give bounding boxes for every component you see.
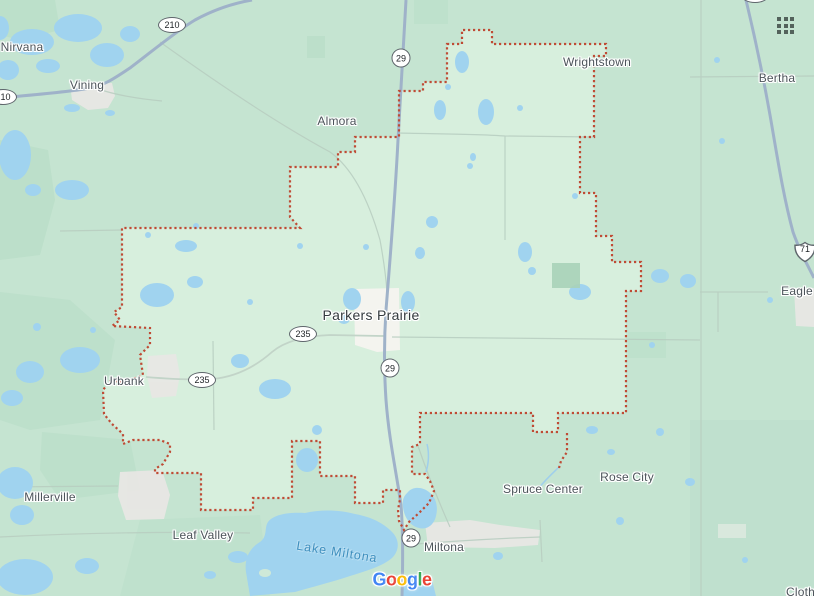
lake-island xyxy=(259,569,271,577)
place-label-nirvana[interactable]: Nirvana xyxy=(1,40,44,54)
map-graphics xyxy=(0,0,814,596)
place-label-millerville[interactable]: Millerville xyxy=(24,490,76,504)
grid-dot xyxy=(777,17,781,21)
place-label-almora[interactable]: Almora xyxy=(317,114,356,128)
place-label-spruce-center[interactable]: Spruce Center xyxy=(503,482,583,496)
place-label-eagle[interactable]: Eagle xyxy=(781,284,813,298)
route-shield-29-mid: 29 xyxy=(381,359,400,378)
place-label-rose-city[interactable]: Rose City xyxy=(600,470,654,484)
grid-dot xyxy=(784,30,788,34)
forest-patch xyxy=(552,263,580,288)
logo-letter: o xyxy=(386,570,397,590)
place-label-leaf-valley[interactable]: Leaf Valley xyxy=(173,528,234,542)
route-shield-29-top: 29 xyxy=(392,49,411,68)
place-label-miltona[interactable]: Miltona xyxy=(424,540,464,554)
place-label-clotho[interactable]: Clotho xyxy=(786,585,814,596)
grid-dot xyxy=(777,24,781,28)
place-label-urbank[interactable]: Urbank xyxy=(104,374,144,388)
grid-dot xyxy=(790,24,794,28)
map-canvas[interactable]: 210 210 29 29 29 235 235 71 Nirvana Vini… xyxy=(0,0,814,596)
place-label-bertha[interactable]: Bertha xyxy=(759,71,796,85)
route-shield-235-a: 235 xyxy=(188,372,216,388)
logo-letter: g xyxy=(407,570,418,590)
google-logo[interactable]: Google xyxy=(372,570,431,591)
route-shield-235-b: 235 xyxy=(289,326,317,342)
logo-letter: e xyxy=(422,570,432,590)
grid-dot xyxy=(790,17,794,21)
logo-letter: G xyxy=(372,570,386,590)
logo-letter: o xyxy=(396,570,407,590)
grid-dot xyxy=(784,17,788,21)
place-label-wrightstown[interactable]: Wrightstown xyxy=(563,55,631,69)
place-label-vining[interactable]: Vining xyxy=(70,78,104,92)
apps-grid-icon[interactable] xyxy=(777,17,795,35)
grid-dot xyxy=(790,30,794,34)
us-shield-number: 71 xyxy=(793,244,814,254)
place-label-parkers-prairie[interactable]: Parkers Prairie xyxy=(322,307,419,323)
route-shield-29-bottom: 29 xyxy=(402,529,421,548)
grid-dot xyxy=(784,24,788,28)
route-shield-71: 71 xyxy=(793,241,814,263)
route-shield-210-a: 210 xyxy=(158,17,186,33)
grid-dot xyxy=(777,30,781,34)
